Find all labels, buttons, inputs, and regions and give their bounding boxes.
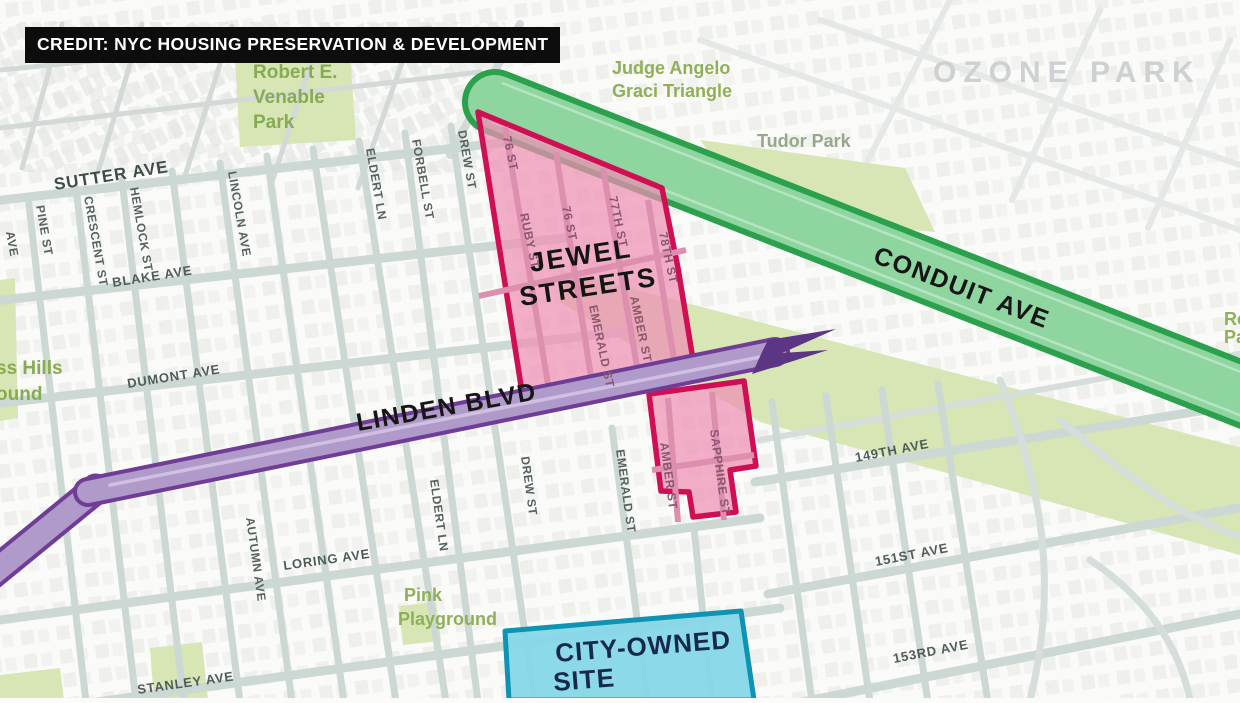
park-label-graci-line1: Judge Angelo [612,58,730,78]
park-label-venable-line3: Park [253,112,295,133]
map-svg: OZONE PARK Robert E. Venable Park Judge … [0,0,1240,698]
map-canvas: OZONE PARK Robert E. Venable Park Judge … [0,0,1240,698]
park-label-right-cut-line1: Ro [1224,309,1240,329]
park-label-pink-playground-line1: Pink [404,585,443,605]
credit-banner: CREDIT: NYC HOUSING PRESERVATION & DEVEL… [25,27,560,63]
highlight-label-city-line2: SITE [552,662,616,697]
district-label-ozone-park: OZONE PARK [933,56,1201,89]
park-label-right-cut-line2: Pa [1224,327,1240,347]
park-label-tudor: Tudor Park [757,131,852,151]
park-label-graci-line2: Graci Triangle [612,81,732,101]
park-label-pink-playground-line2: Playground [398,609,497,629]
park-label-venable-line2: Venable [253,87,325,108]
park-label-cypress-cut-line1: ss Hills [0,358,63,379]
park-label-venable-line1: Robert E. [253,62,337,83]
credit-text: CREDIT: NYC HOUSING PRESERVATION & DEVEL… [37,34,548,54]
park-label-cypress-cut-line2: ound [0,384,42,405]
